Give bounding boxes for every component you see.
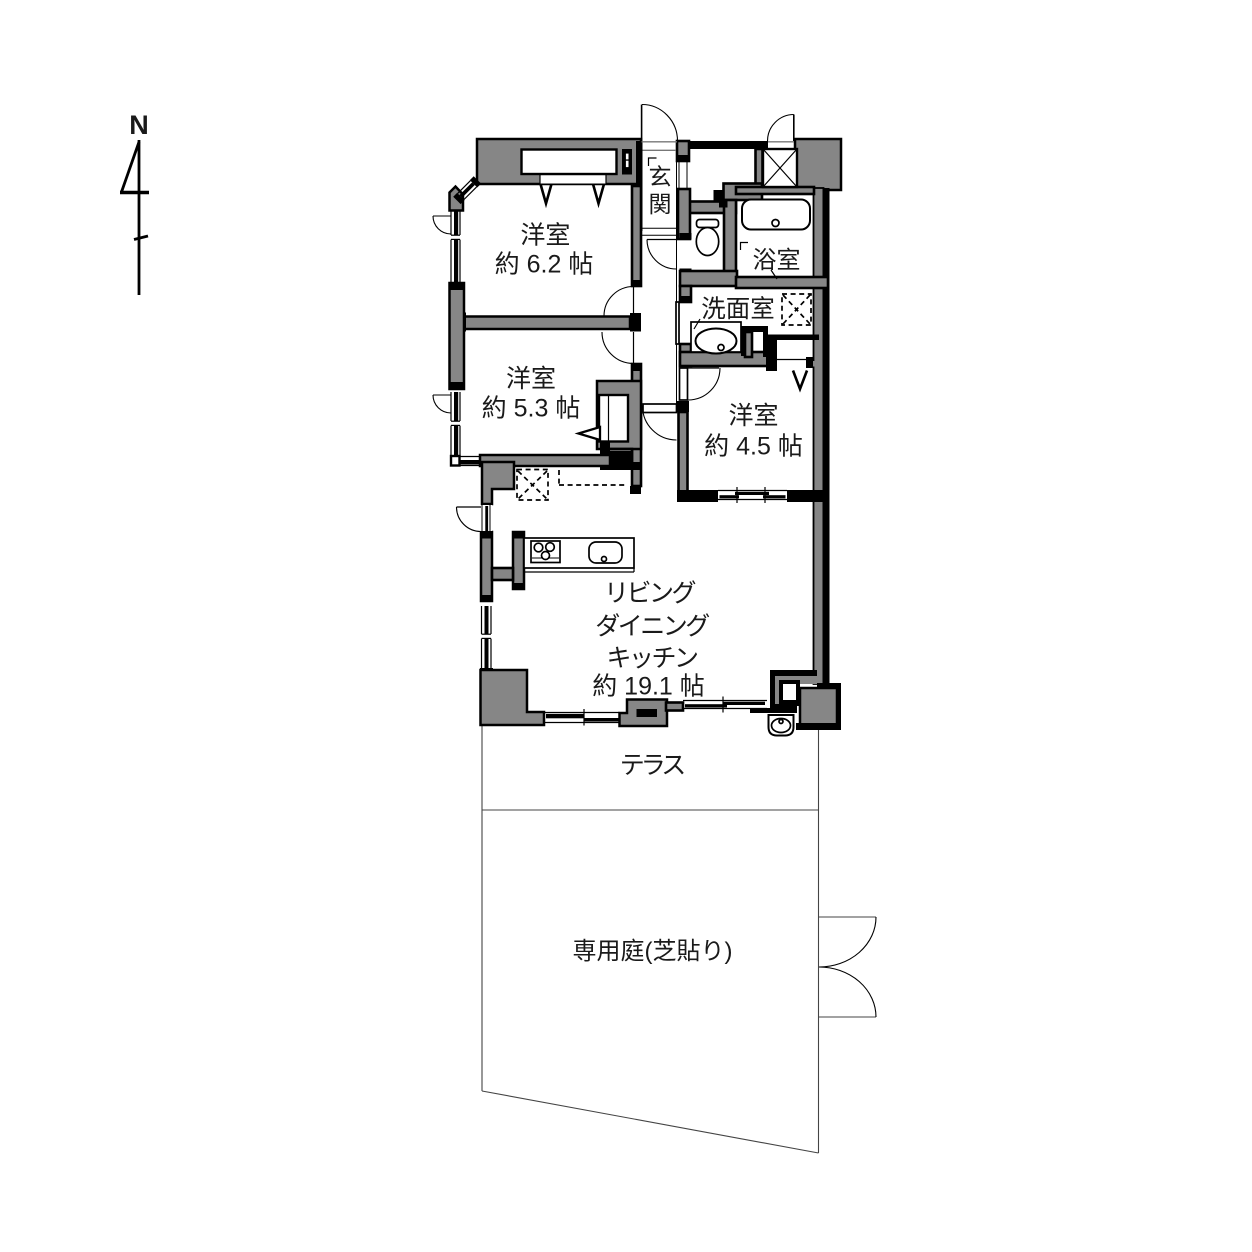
svg-text:約 19.1 帖: 約 19.1 帖 <box>592 673 705 701</box>
svg-text:洋室: 洋室 <box>506 365 556 393</box>
svg-text:浴室: 浴室 <box>753 247 801 274</box>
svg-text:キッチン: キッチン <box>606 645 698 673</box>
svg-text:玄: 玄 <box>649 164 672 190</box>
svg-text:洗面室: 洗面室 <box>701 295 775 323</box>
svg-text:関: 関 <box>649 191 672 217</box>
svg-text:専用庭(芝貼り): 専用庭(芝貼り) <box>573 938 733 965</box>
svg-text:洋室: 洋室 <box>520 222 570 250</box>
svg-text:約 5.3 帖: 約 5.3 帖 <box>482 395 581 423</box>
svg-text:ダイニング: ダイニング <box>595 613 709 641</box>
svg-text:約 6.2 帖: 約 6.2 帖 <box>495 251 594 279</box>
svg-text:N: N <box>129 110 149 140</box>
svg-text:約 4.5 帖: 約 4.5 帖 <box>704 433 803 461</box>
svg-text:テラス: テラス <box>620 752 685 780</box>
svg-text:リビング: リビング <box>604 580 696 608</box>
svg-text:洋室: 洋室 <box>728 402 778 430</box>
